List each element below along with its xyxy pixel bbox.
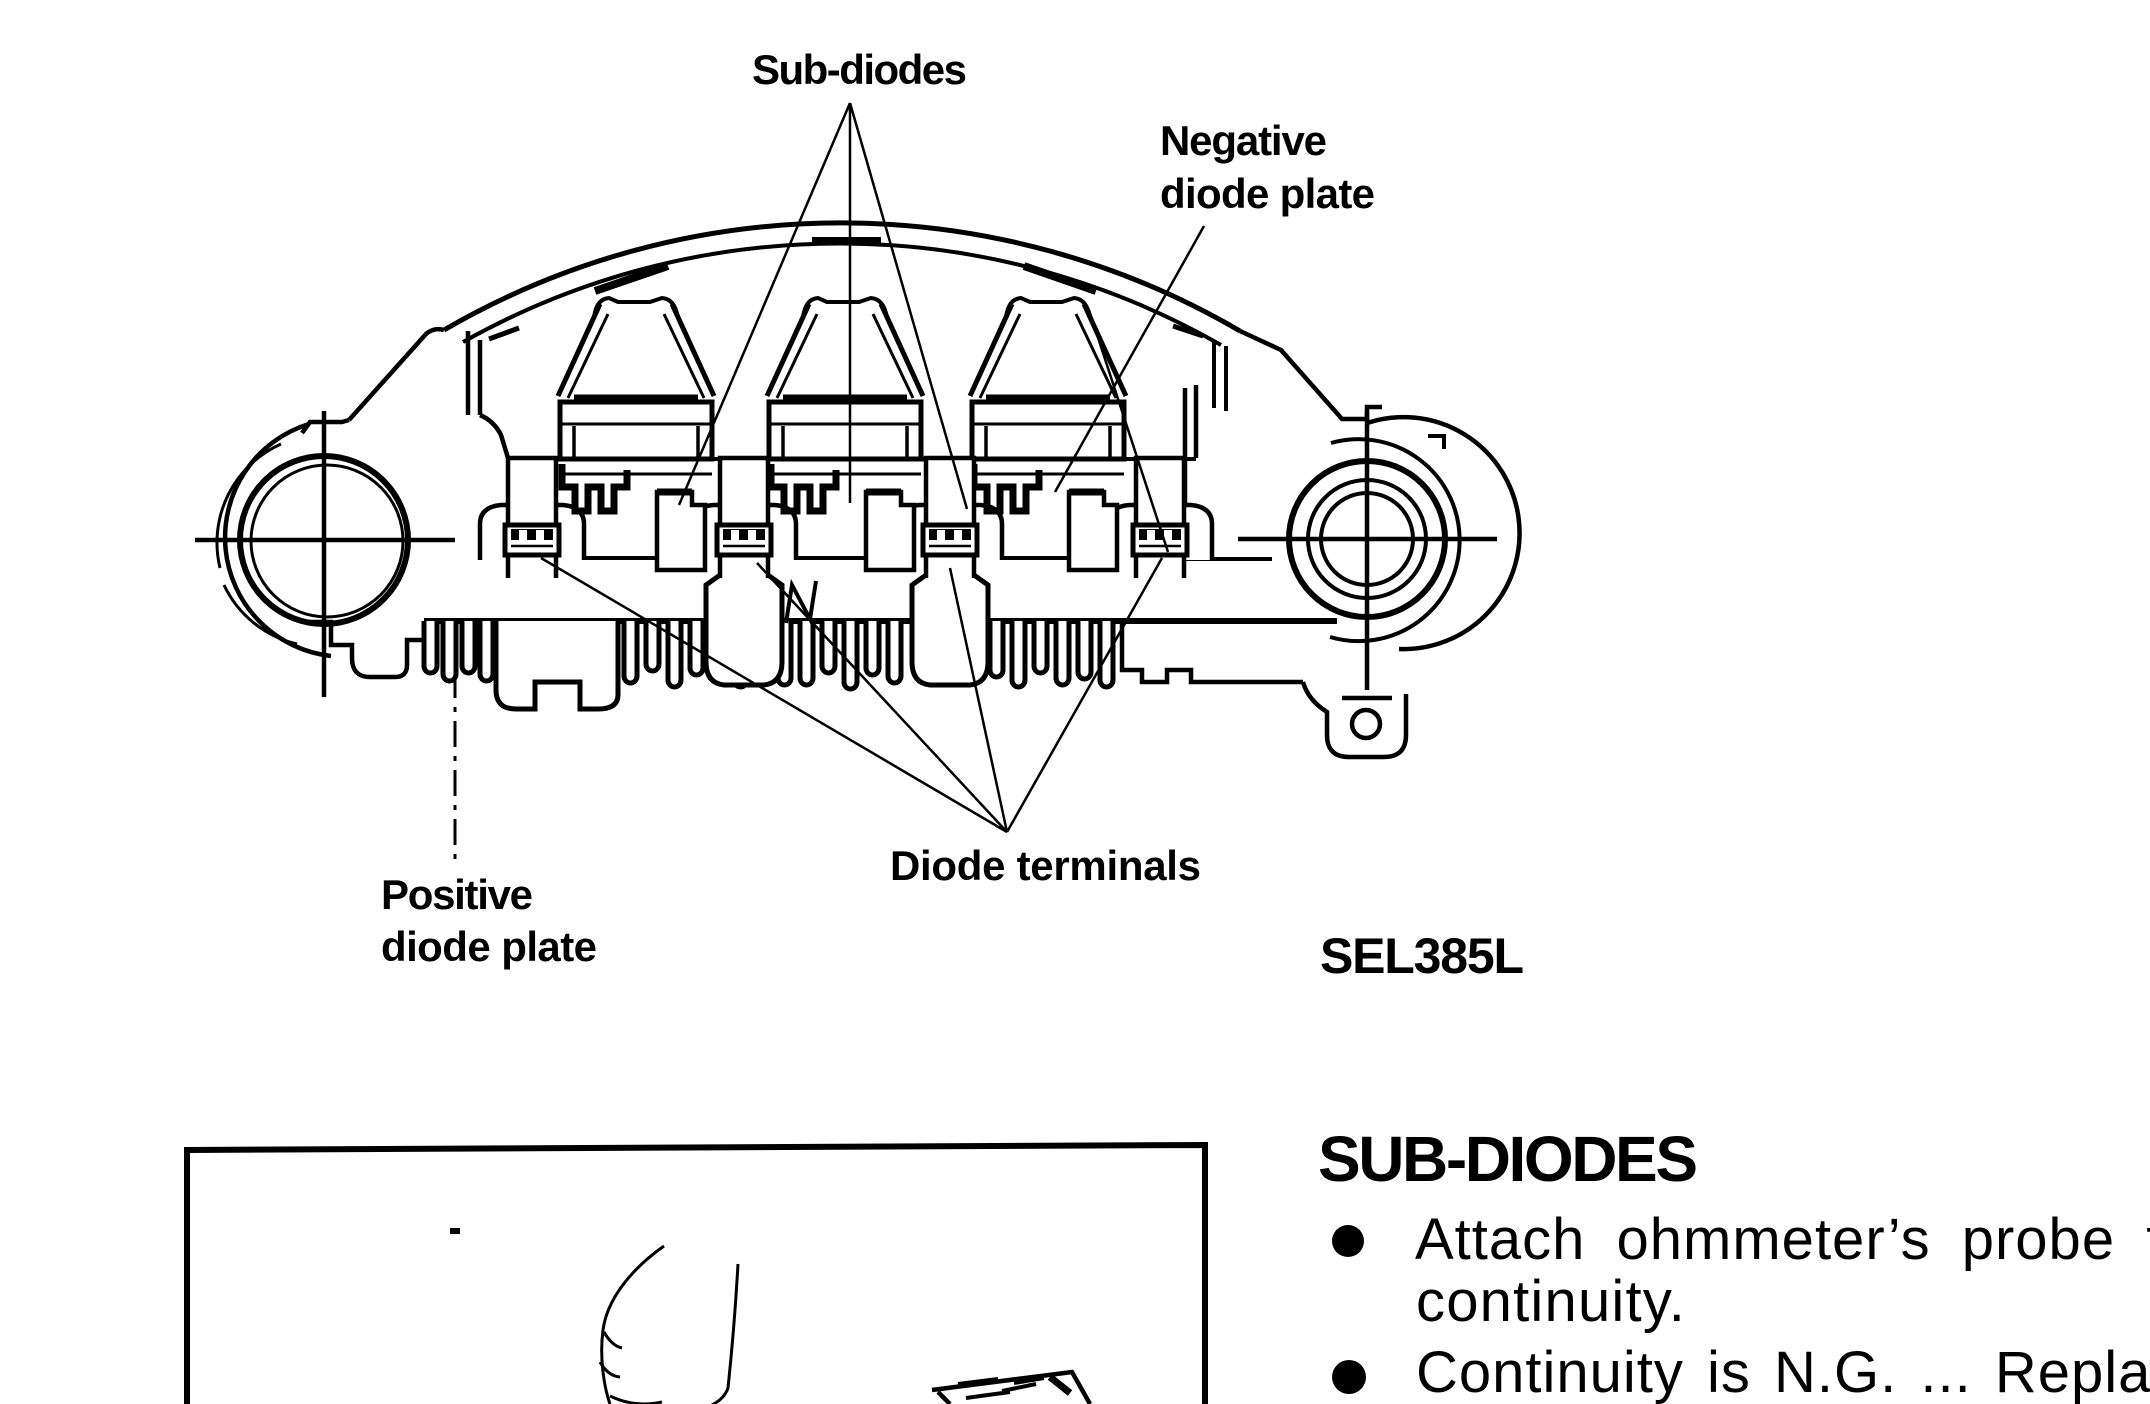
- svg-text:Negative: Negative: [1160, 117, 1327, 164]
- svg-text:Diode terminals: Diode terminals: [890, 842, 1201, 889]
- svg-text:Positive: Positive: [381, 871, 533, 918]
- svg-text:diode plate: diode plate: [1160, 170, 1375, 217]
- svg-text:SUB-DIODES: SUB-DIODES: [1318, 1123, 1698, 1195]
- svg-text:SEL385L: SEL385L: [1320, 928, 1524, 984]
- svg-text:Continuity is N.G. ... Replace: Continuity is N.G. ... Replace: [1416, 1340, 2150, 1404]
- svg-text:diode plate: diode plate: [381, 923, 597, 970]
- svg-text:continuity.: continuity.: [1416, 1269, 1686, 1334]
- svg-text:Attach ohmmeter’s probe to a: Attach ohmmeter’s probe to a: [1415, 1207, 2150, 1272]
- svg-text:Sub-diodes: Sub-diodes: [752, 46, 967, 93]
